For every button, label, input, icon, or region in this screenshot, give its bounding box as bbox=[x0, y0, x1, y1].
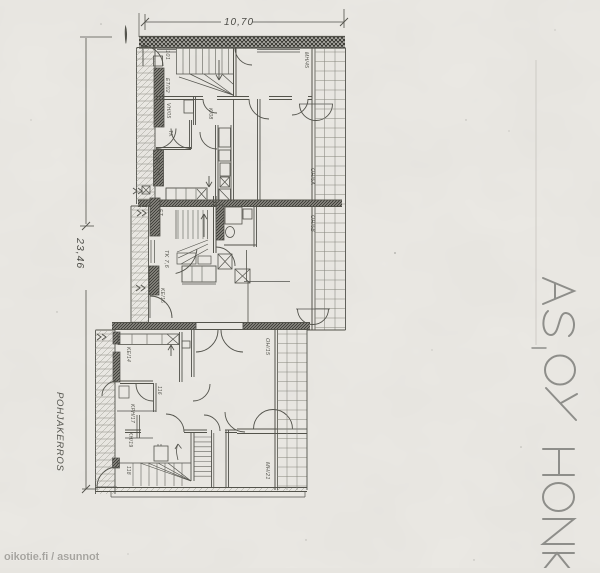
svg-text:101: 101 bbox=[164, 50, 170, 60]
svg-text:118: 118 bbox=[125, 466, 131, 475]
svg-text:POHJAKERROS: POHJAKERROS bbox=[54, 392, 65, 472]
svg-text:KE 7,6: KE 7,6 bbox=[154, 157, 160, 176]
svg-text:116: 116 bbox=[156, 386, 162, 395]
svg-text:KPH/17: KPH/17 bbox=[129, 404, 135, 423]
svg-text:VH/05: VH/05 bbox=[165, 103, 171, 118]
svg-text:MH/21: MH/21 bbox=[264, 462, 270, 480]
svg-text:TK 7,6: TK 7,6 bbox=[163, 250, 169, 269]
svg-text:K/08: K/08 bbox=[207, 108, 213, 120]
svg-text:TK: TK bbox=[167, 130, 173, 137]
svg-text:OH/5B: OH/5B bbox=[309, 215, 315, 232]
svg-text:KE/16: KE/16 bbox=[159, 288, 165, 303]
svg-text:ET: ET bbox=[157, 209, 163, 217]
svg-text:oikotie.fi / asunnot: oikotie.fi / asunnot bbox=[4, 551, 100, 563]
svg-text:KH/19: KH/19 bbox=[127, 432, 133, 447]
svg-text:23,46: 23,46 bbox=[74, 237, 86, 269]
svg-text:ET/02: ET/02 bbox=[164, 78, 170, 93]
svg-text:MH/45: MH/45 bbox=[303, 52, 309, 68]
svg-text:10,70: 10,70 bbox=[224, 17, 254, 28]
svg-text:OH/15: OH/15 bbox=[264, 338, 270, 356]
svg-text:KE/14: KE/14 bbox=[125, 347, 131, 362]
